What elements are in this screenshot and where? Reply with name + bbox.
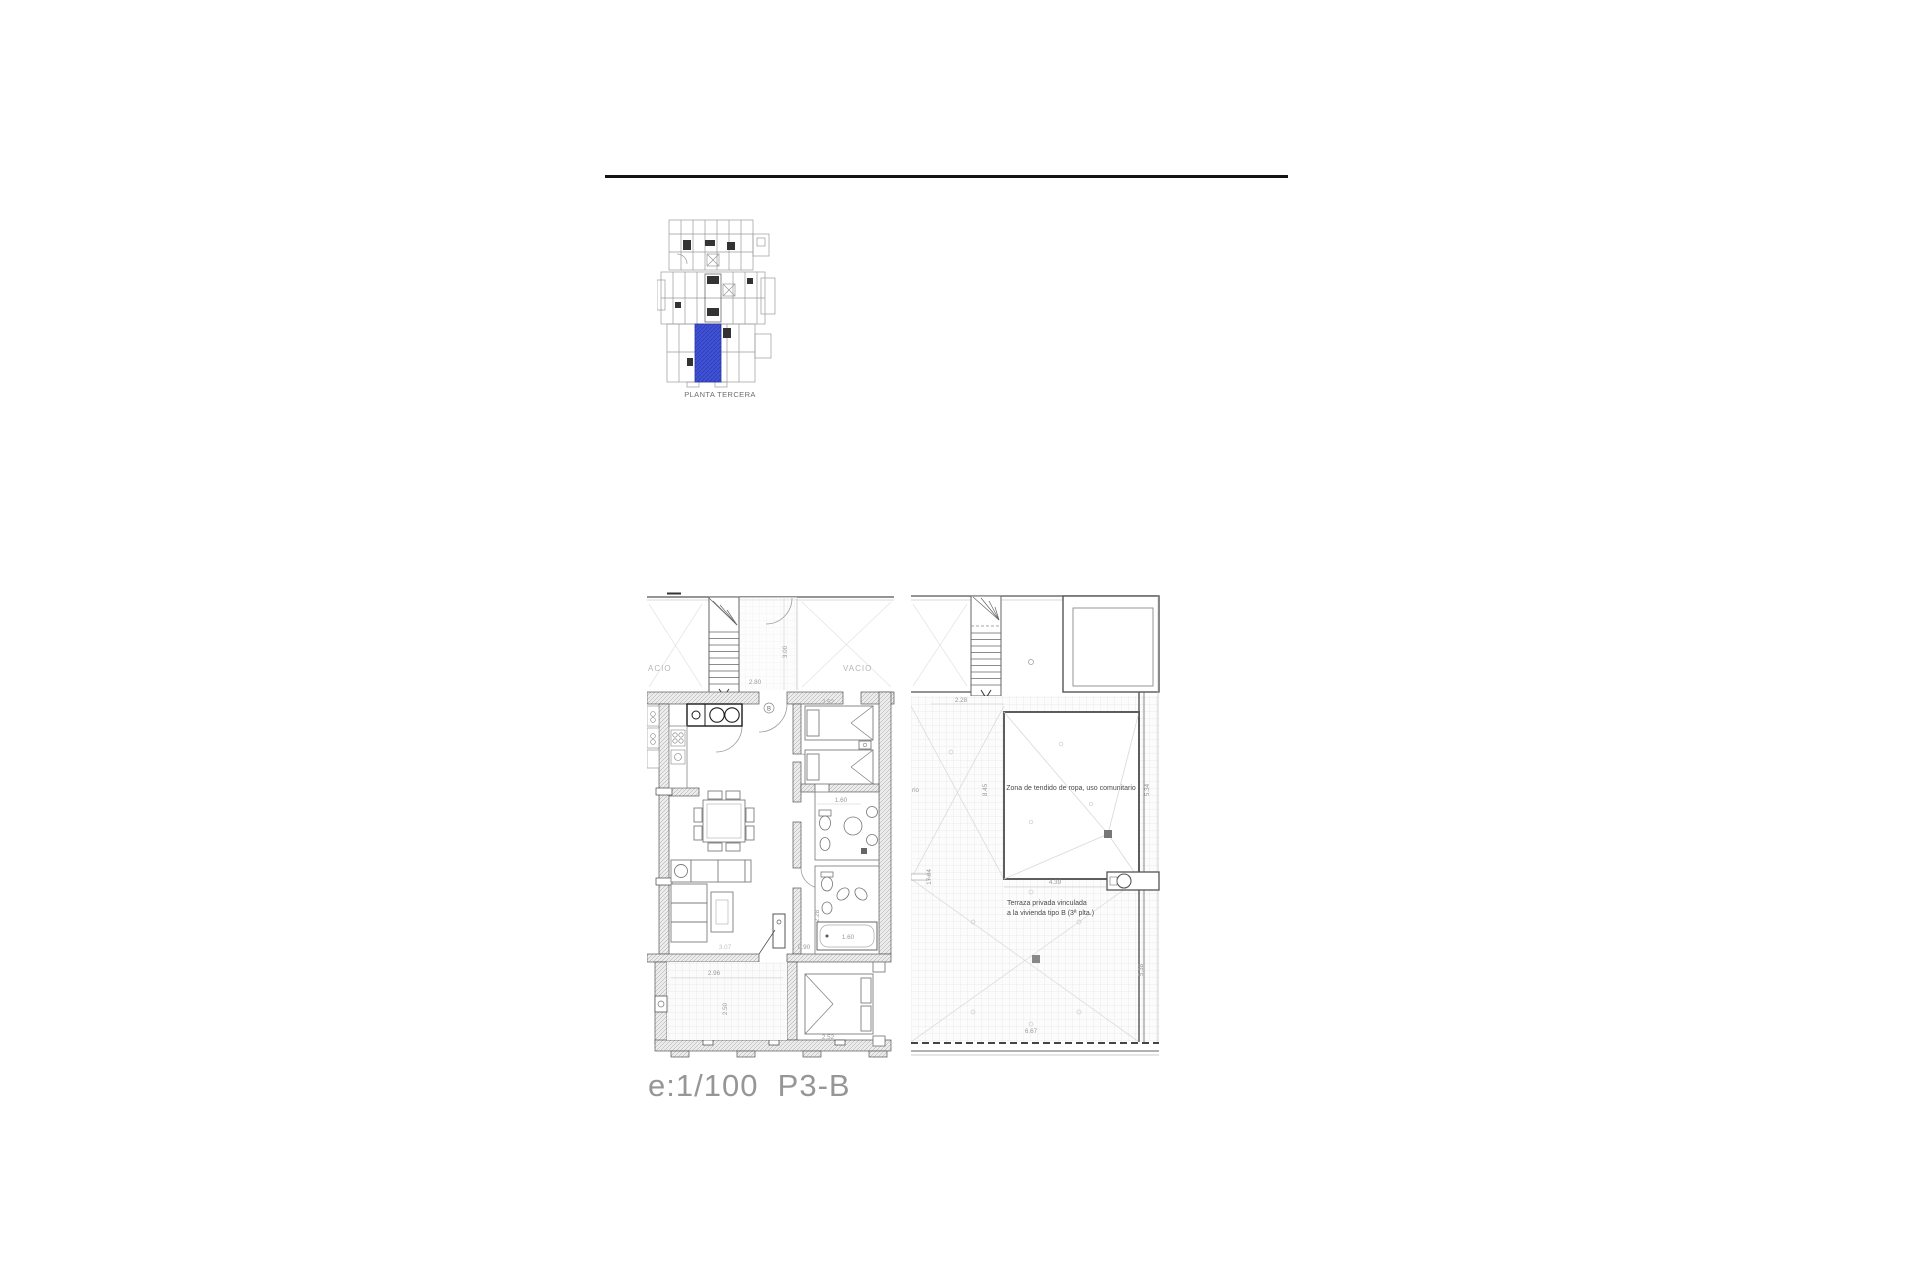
void-shaft-outer [1063,596,1159,692]
dim-tub-length: 1.60 [842,934,855,941]
title-rule-line [605,175,1288,178]
apartment-floor-plan-drawing: ACIO VACIO 3.00 2.80 B [647,592,899,1066]
water-heater [759,914,785,954]
dim-terrace-width: 2.96 [708,970,721,977]
key-plan-drawing [657,218,782,388]
dim-terrace-width-top: 4.39 [1049,879,1062,886]
terrace-floor-plan-drawing: Zona de tendido de ropa, uso comunitario… [911,592,1161,1062]
vent-chimney [1107,872,1159,890]
laundry-zone-label: Zona de tendido de ropa, uso comunitario [1006,785,1136,792]
bottom-boundary [911,1043,1159,1055]
dim-strip-width: 2.28 [955,697,968,704]
highlighted-unit [695,324,721,382]
staircase [709,597,739,696]
terrace-label-line1: Terraza privada vinculada [1007,900,1087,907]
dim-living-width: 3.07 [719,944,732,951]
terrace-top-level [911,596,1159,698]
void-label-right: VACIO [843,664,872,673]
dim-hall-depth: 2.28 [814,909,821,922]
dining-table [694,791,754,851]
drain-square [1104,830,1112,838]
scale-label: e:1/100 P3-B [648,1068,851,1104]
dim-laundry-right-depth: 5.34 [1144,783,1151,796]
stair-landing-level: ACIO VACIO 3.00 2.80 [647,594,894,697]
dim-bath-lower-width: 0.90 [798,944,811,951]
dim-laundry-depth: 8.45 [982,783,989,796]
door-label: B [767,707,771,713]
dim-stair-width: 2.80 [749,679,762,686]
apartment-floor-plan: ACIO VACIO 3.00 2.80 B [647,592,899,1066]
dim-strip-depth: 17.04 [926,869,933,885]
terrace-label-line2: a la vivienda tipo B (3ª plta.) [1007,910,1094,917]
key-plan-caption: PLANTA TERCERA [650,390,790,399]
terrace-floor-plan: Zona de tendido de ropa, uso comunitario… [911,592,1161,1062]
plan-sheet-page: { "page": { "scale_label": "e:1/100 P3-B… [0,0,1920,1280]
bedroom-top [805,706,873,784]
corridor-marker [1029,660,1034,665]
staircase [971,596,1001,698]
clipped-label-fragment: rio [912,787,919,794]
dim-bath-upper: 1.60 [835,797,848,804]
dim-terrace-right-depth: 5.38 [1138,963,1145,976]
terrace-drain-square [1032,955,1040,963]
key-plan [657,218,782,388]
bedroom-bottom [805,962,885,1046]
dim-bedroom1-width: 2.52 [822,699,835,706]
dim-stair-depth: 3.00 [782,645,789,658]
terrace-small [655,962,787,1040]
laundry-zone [1004,712,1139,879]
void-label-left: ACIO [648,664,672,673]
dim-terrace-width-bottom: 6.67 [1025,1028,1038,1035]
sofa-group [671,860,751,942]
dim-bedroom2-width: 2.52 [822,1034,835,1041]
dim-terrace-depth: 2.50 [722,1002,729,1015]
